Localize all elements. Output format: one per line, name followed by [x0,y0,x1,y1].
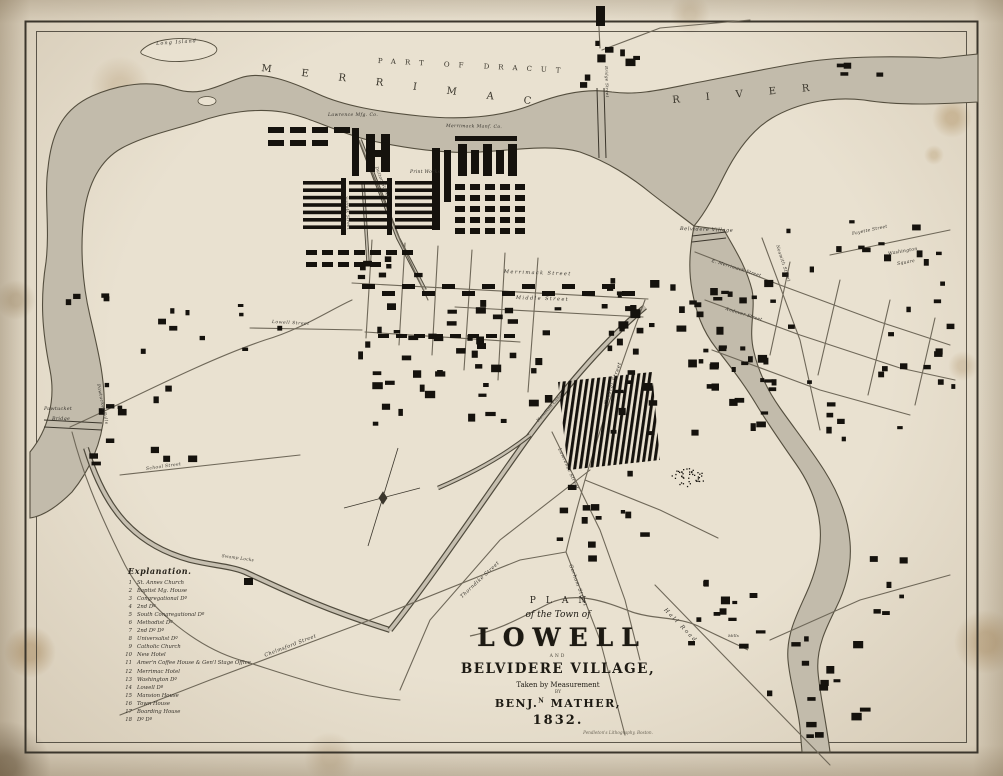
legend-entry-label: Lowell Dº [137,684,163,692]
legend-entry-label: Mansion House [137,692,179,700]
explanation-legend: Explanation. 1St. Annes Church2Baptist M… [122,566,307,724]
legend-entry-6: 6Methodist Dº [122,619,307,627]
title-plan: PLAN [428,596,688,606]
author-pre: BENJ. [495,697,538,710]
legend-entry-num: 11 [122,659,132,667]
legend-entry-num: 5 [122,611,132,619]
legend-entry-16: 16Town House [122,700,307,708]
legend-entry-label: Merrimac Hotel [137,668,180,676]
legend-entry-num: 9 [122,643,132,651]
legend-entry-label: Baptist Mg. House [137,587,187,595]
pawtucket-bridge-line2-label: Bridge [52,418,70,423]
title-and: AND [428,654,688,659]
mills-label: Mills [728,634,739,638]
legend-entry-label: Amer'n Coffee House & Gen'l Stage Office [137,659,251,667]
legend-entry-11: 11Amer'n Coffee House & Gen'l Stage Offi… [122,659,307,667]
legend-entry-num: 1 [122,579,132,587]
title-year: 1832. [428,713,688,728]
legend-entry-num: 7 [122,627,132,635]
title-by: BY [428,690,688,695]
legend-entry-num: 16 [122,700,132,708]
title-town: LOWELL [428,623,688,652]
map-sheet: PART OF DRACUTMERRIMACRIVERLong IslandLa… [0,0,1003,776]
legend-entry-label: Methodist Dº [137,619,173,627]
legend-entry-label: Boarding House [137,708,180,716]
legend-entry-9: 9Catholic Church [122,643,307,651]
legend-entry-17: 17Boarding House [122,708,307,716]
compass-rose [344,448,420,546]
legend-heading: Explanation. [128,566,307,576]
legend-entry-13: 13Washington Dº [122,676,307,684]
legend-entry-label: Dº Dº [137,716,152,724]
author-post: MATHER, [545,697,621,710]
legend-entry-num: 15 [122,692,132,700]
legend-entry-num: 8 [122,635,132,643]
legend-entry-label: Congregational Dº [137,595,187,603]
pawtucket-bridge-line1-label: Pawtucket [44,408,72,413]
legend-entry-label: 2nd Dº Dº [137,627,164,635]
title-imprint: Pendleton's Lithography, Boston. [548,730,688,735]
legend-entry-8: 8Universalist Dº [122,635,307,643]
legend-entry-num: 12 [122,668,132,676]
concord-river [690,226,851,752]
legend-entry-num: 10 [122,651,132,659]
legend-entry-2: 2Baptist Mg. House [122,587,307,595]
legend-entries: 1St. Annes Church2Baptist Mg. House3Cong… [122,579,307,724]
legend-entry-3: 3Congregational Dº [122,595,307,603]
legend-entry-label: New Hotel [137,651,166,659]
legend-entry-num: 3 [122,595,132,603]
title-village: BELVIDERE VILLAGE, [428,661,688,677]
merrimack-manf-co-label: Merrimack Manf. Co. [446,125,502,130]
legend-entry-5: 5South Congregational Dº [122,611,307,619]
legend-entry-7: 72nd Dº Dº [122,627,307,635]
title-author: BENJ.N MATHER, [428,697,688,710]
legend-entry-num: 14 [122,684,132,692]
legend-entry-10: 10New Hotel [122,651,307,659]
legend-entry-label: 2nd Dº [137,603,156,611]
legend-entry-12: 12Merrimac Hotel [122,668,307,676]
legend-entry-label: Washington Dº [137,676,177,684]
map-title-block: PLAN of the Town of LOWELL AND BELVIDERE… [428,596,688,735]
title-of: of the Town of [428,610,688,620]
legend-entry-label: Catholic Church [137,643,181,651]
legend-entry-14: 14Lowell Dº [122,684,307,692]
legend-entry-num: 18 [122,716,132,724]
legend-entry-num: 17 [122,708,132,716]
legend-entry-label: Universalist Dº [137,635,178,643]
small-island-shape [198,97,216,106]
legend-entry-15: 15Mansion House [122,692,307,700]
legend-entry-1: 1St. Annes Church [122,579,307,587]
legend-entry-num: 13 [122,676,132,684]
legend-entry-label: Town House [137,700,170,708]
lawrence-mfg-co-label: Lawrence Mfg. Co. [328,114,378,119]
legend-entry-label: St. Annes Church [137,579,184,587]
legend-entry-4: 42nd Dº [122,603,307,611]
title-taken-by: Taken by Measurement [428,681,688,689]
legend-entry-num: 6 [122,619,132,627]
bridge-street-label: Bridge Street [604,66,609,98]
legend-entry-18: 18Dº Dº [122,716,307,724]
legend-entry-num: 4 [122,603,132,611]
print-works-label: Print Works [410,171,440,176]
legend-entry-num: 2 [122,587,132,595]
legend-entry-label: South Congregational Dº [137,611,204,619]
